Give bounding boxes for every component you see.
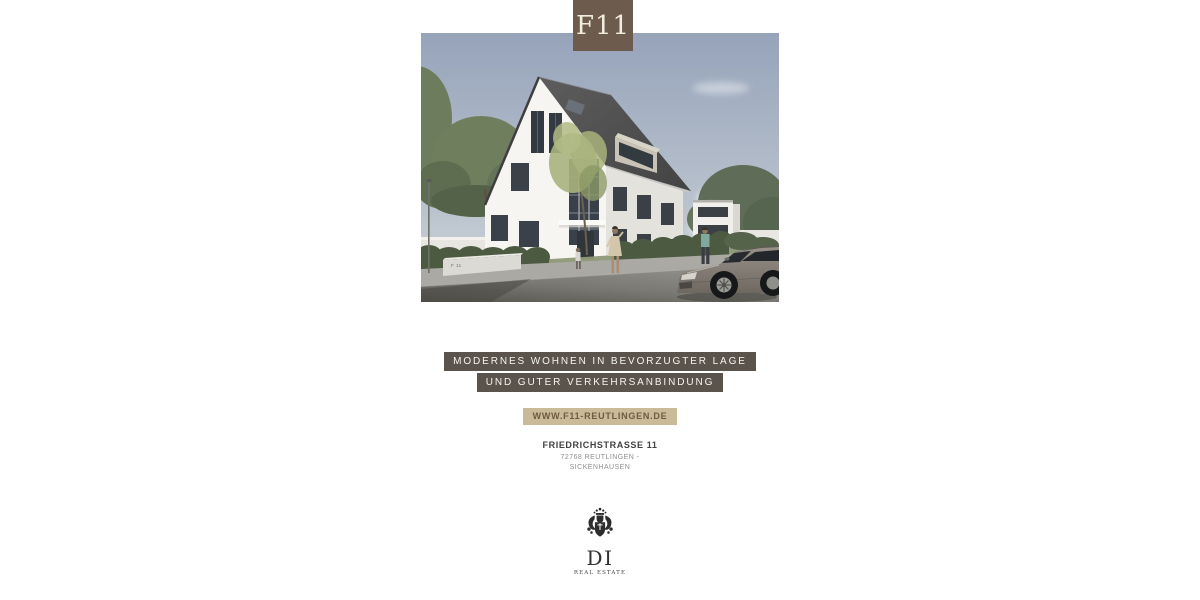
address-block: FRIEDRICHSTRASSE 11 72768 REUTLINGEN - S… (0, 440, 1200, 471)
brand-subtitle: REAL ESTATE (0, 570, 1200, 576)
rear-building-window (698, 207, 728, 217)
brand-monogram: DI (0, 548, 1200, 568)
property-photo-illustration: F 11 (421, 33, 779, 302)
address-street: FRIEDRICHSTRASSE 11 (0, 440, 1200, 450)
di-crest-icon (583, 506, 617, 542)
entrance-canopy (559, 220, 605, 225)
headline-line2: UND GUTER VERKEHRSANBINDUNG (477, 373, 724, 392)
website-row: WWW.F11-REUTLINGEN.DE (0, 406, 1200, 425)
website-link[interactable]: WWW.F11-REUTLINGEN.DE (523, 408, 678, 425)
window (519, 221, 539, 247)
property-photo: F 11 (421, 33, 779, 302)
headline: MODERNES WOHNEN IN BEVORZUGTER LAGE UND … (0, 352, 1200, 392)
address-district: SICKENHAUSEN (0, 464, 1200, 471)
window (491, 215, 508, 241)
brochure-page: F11 (0, 0, 1200, 600)
headline-line1: MODERNES WOHNEN IN BEVORZUGTER LAGE (444, 352, 756, 371)
f11-logo-badge: F11 (573, 0, 633, 51)
f11-logo-text: F11 (576, 11, 630, 41)
address-city: 72768 REUTLINGEN - (0, 454, 1200, 461)
car-mirror (725, 257, 730, 260)
sign-wall-text: F 11 (451, 263, 462, 268)
brand-logo: DI REAL ESTATE (0, 506, 1200, 576)
